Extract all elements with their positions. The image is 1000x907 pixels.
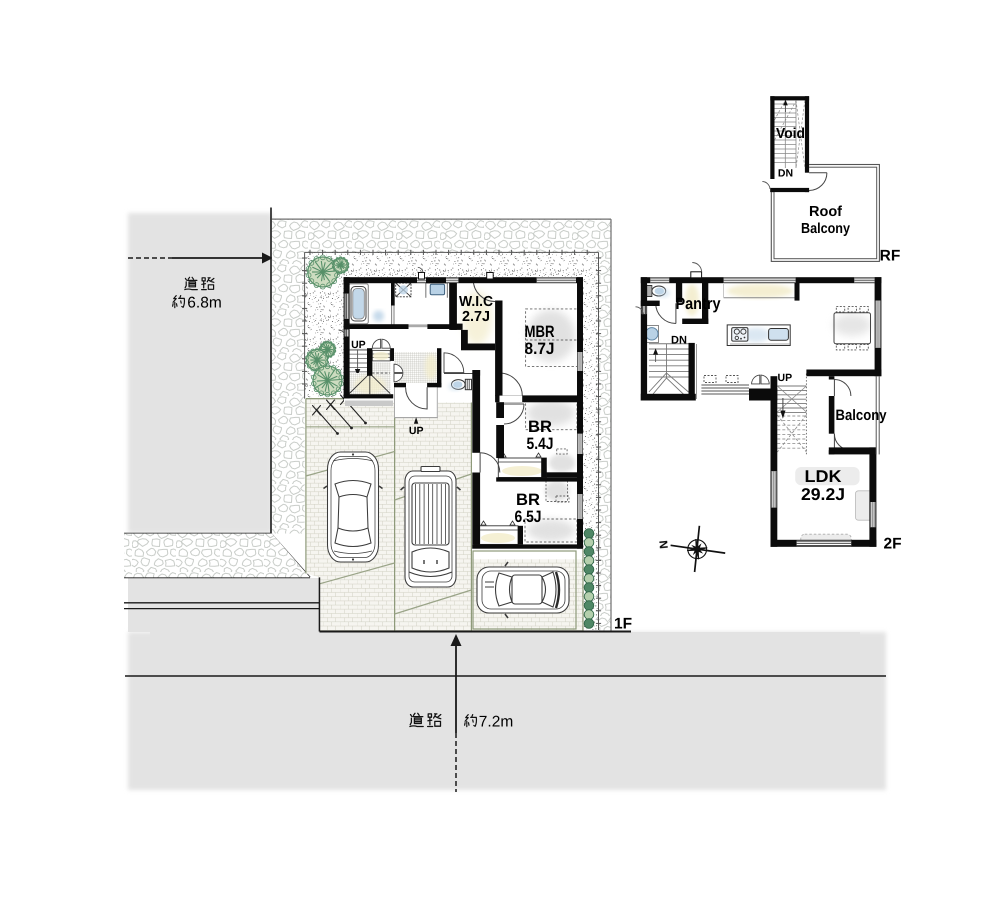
svg-text:2F: 2F — [883, 536, 901, 553]
svg-text:RF: RF — [880, 248, 901, 265]
svg-text:W.I.C: W.I.C — [459, 294, 493, 310]
svg-text:7.2m: 7.2m — [479, 714, 513, 731]
svg-text:BR: BR — [528, 418, 552, 436]
svg-text:6.8m: 6.8m — [187, 295, 221, 312]
svg-text:LDK: LDK — [805, 467, 843, 486]
svg-text:UP: UP — [409, 425, 424, 437]
svg-text:BR: BR — [516, 491, 540, 509]
svg-text:Pantry: Pantry — [676, 295, 722, 313]
svg-text:6.5J: 6.5J — [515, 508, 542, 526]
svg-text:5.4J: 5.4J — [527, 435, 554, 453]
svg-text:Void: Void — [776, 126, 805, 142]
svg-text:Balcony: Balcony — [801, 221, 850, 237]
svg-text:1F: 1F — [614, 616, 632, 633]
svg-text:DN: DN — [671, 335, 687, 347]
svg-text:2.7J: 2.7J — [462, 309, 490, 325]
svg-text:DN: DN — [778, 168, 793, 180]
svg-text:N: N — [658, 540, 671, 549]
svg-text:UP: UP — [778, 372, 793, 384]
svg-text:Roof: Roof — [809, 204, 842, 220]
svg-text:Balcony: Balcony — [836, 407, 888, 424]
svg-text:MBR: MBR — [525, 323, 555, 341]
svg-text:29.2J: 29.2J — [801, 485, 845, 504]
svg-text:8.7J: 8.7J — [525, 340, 555, 358]
svg-text:UP: UP — [351, 339, 366, 351]
